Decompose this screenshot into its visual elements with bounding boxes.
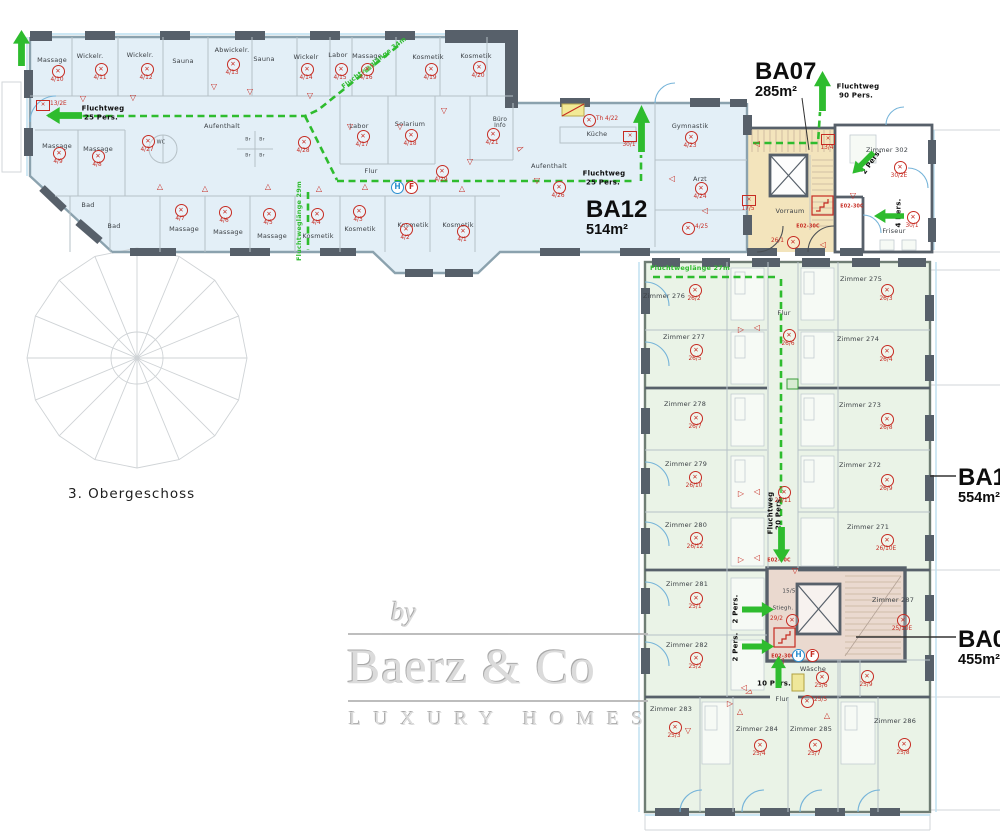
escape-arrow-left <box>46 107 82 124</box>
floor-plan-page: MassageWickelr.Wickelr.SaunaAbwickelr.Sa… <box>0 0 1000 836</box>
detector-code: 29/2 <box>770 616 783 622</box>
area-label-ba04: BA04 455m² <box>958 628 1000 668</box>
plan-label: Flur <box>775 696 788 703</box>
detector-code: 4/15 <box>333 75 346 81</box>
plan-label: Fluchtweglänge 27m <box>650 265 730 272</box>
door-swing-marker: ▽ <box>80 95 86 103</box>
door-swing-marker: ◁ <box>754 488 760 496</box>
detector-code: 26/10 <box>686 483 703 489</box>
detector-code: 4/12 <box>139 75 152 81</box>
ba12-size: 514m² <box>586 223 647 238</box>
door-swing-marker: ▽ <box>211 83 217 91</box>
detector-code: 4/11 <box>93 75 106 81</box>
plan-label: 15/5 <box>782 589 795 595</box>
door-swing-marker: ▽ <box>307 92 313 100</box>
plan-label: Küche <box>587 131 608 138</box>
plan-label: Fluchtweg <box>82 106 125 113</box>
red-direction-arrow: ▻ <box>743 687 753 698</box>
detector-code: 4/5 <box>263 220 272 226</box>
door-swing-marker: ▷ <box>738 490 744 498</box>
plan-label: Massage <box>169 226 199 233</box>
detector-code: 25/10E <box>892 626 912 632</box>
hydrant-icon: H <box>792 649 805 662</box>
plan-label: Zimmer 281 <box>666 581 708 588</box>
red-direction-arrow: ▻ <box>516 143 526 154</box>
detector-code: 4/26 <box>551 193 564 199</box>
plan-label: Br <box>259 155 264 160</box>
plan-label: 2 Pers. <box>733 595 740 624</box>
detector-code: 25/3 <box>667 733 680 739</box>
door-swing-marker: △ <box>265 183 271 191</box>
plan-label: Fluchtweg <box>837 84 880 91</box>
plan-label: Zimmer 278 <box>664 401 706 408</box>
door-swing-marker: ▽ <box>850 192 856 200</box>
plan-label: Stiegh. <box>773 606 794 612</box>
plan-label: Bad <box>107 223 120 230</box>
ba04-name: BA04 <box>958 628 1000 652</box>
detector-code: 25/9 <box>859 682 872 688</box>
ba07-size: 285m² <box>755 85 816 100</box>
plan-label: 25 Pers. <box>84 115 118 122</box>
plan-label: Bad <box>81 202 94 209</box>
plan-label: Labor <box>328 52 347 59</box>
door-swing-marker: ◁ <box>754 554 760 562</box>
plan-label: Flur <box>364 168 377 175</box>
detector-code: 17/5 <box>741 206 754 212</box>
detector-code: 30/1 <box>905 223 918 229</box>
plan-label: Kosmetik <box>412 54 443 61</box>
door-swing-marker: ◁ <box>754 324 760 332</box>
door-swing-marker: ▷ <box>738 326 744 334</box>
door-swing-marker: ▷ <box>727 700 733 708</box>
plan-label: Zimmer 283 <box>650 706 692 713</box>
area-label-ba07: BA07 285m² <box>755 60 816 100</box>
hydrant-icon: H <box>391 181 404 194</box>
plan-label: 25 Pers. <box>586 180 620 187</box>
escape-arrow-up <box>633 105 650 152</box>
plan-label: E02-30C <box>767 560 791 565</box>
detector-code: 4/18 <box>403 141 416 147</box>
escape-arrow-right <box>742 639 774 654</box>
detector-code: 4/3 <box>353 217 362 223</box>
area-label-ba12: BA12 514m² <box>586 198 647 238</box>
detector-code: 4/10 <box>50 77 63 83</box>
plan-label: Zimmer 285 <box>790 726 832 733</box>
door-swing-marker: ▽ <box>467 158 473 166</box>
detector-code: 26/2 <box>687 296 700 302</box>
detector-icon: ✕ <box>682 222 695 235</box>
door-swing-marker: ▽ <box>792 567 798 575</box>
detector-code: 25/4 <box>752 751 765 757</box>
plan-label: Zimmer 284 <box>736 726 778 733</box>
detector-code: 25/1 <box>688 604 701 610</box>
detector-code: 4/20 <box>471 73 484 79</box>
plan-label: Zimmer 282 <box>666 642 708 649</box>
detector-code: 25/6 <box>814 683 827 689</box>
plan-label: Zimmer 277 <box>663 334 705 341</box>
plan-label: E02-30C <box>840 206 864 211</box>
detector-code: 4/4 <box>311 220 320 226</box>
ba11-name: BA11 <box>958 466 1000 490</box>
plan-label: Br <box>245 139 250 144</box>
plan-label: Fluchtweglänge 29m <box>296 181 303 261</box>
extinguisher-icon: F <box>405 181 418 194</box>
door-swing-marker: △ <box>459 185 465 193</box>
plan-label: 2 Pers. <box>733 633 740 662</box>
plan-label: Massage <box>257 233 287 240</box>
hydrant-extinguisher-symbol: HF <box>391 174 419 194</box>
detector-icon: ✕ <box>821 134 835 145</box>
plan-label: E02-30C <box>796 226 820 231</box>
plan-label: Br <box>245 155 250 160</box>
escape-arrow-down <box>773 527 790 563</box>
extinguisher-icon: F <box>806 649 819 662</box>
plan-label: Wickelr. <box>77 53 104 60</box>
detector-code: 25/8 <box>896 750 909 756</box>
detector-code: 26/12 <box>687 544 704 550</box>
door-swing-marker: ◁ <box>820 241 826 249</box>
plan-label: 90 Pers. <box>839 93 873 100</box>
plan-label: Sauna <box>172 58 193 65</box>
plan-label: Zimmer 274 <box>837 336 879 343</box>
detector-code: 4/14 <box>299 75 312 81</box>
detector-code: 4/8 <box>92 162 101 168</box>
plan-label: Zimmer 286 <box>874 718 916 725</box>
detector-icon: ✕ <box>623 131 637 142</box>
area-label-ba11: BA11 554m² <box>958 466 1000 506</box>
detector-code: 4/21 <box>485 140 498 146</box>
detector-icon: ✕ <box>583 114 596 127</box>
door-swing-marker: △ <box>316 185 322 193</box>
detector-code: 26/4 <box>879 357 892 363</box>
escape-arrow-right <box>742 602 774 617</box>
door-swing-marker: △ <box>202 185 208 193</box>
detector-code: 4/19 <box>423 75 436 81</box>
detector-code: 4/7 <box>175 216 184 222</box>
detector-icon: ✕ <box>742 195 756 206</box>
detector-code: 4/27 <box>140 147 153 153</box>
detector-code: 4/28 <box>296 148 309 154</box>
plan-label: Wickelr. <box>127 52 154 59</box>
plan-label: Zimmer 271 <box>847 524 889 531</box>
plan-label: Flur <box>777 310 790 317</box>
door-swing-marker: ◁ <box>702 207 708 215</box>
detector-icon: ✕ <box>36 100 50 111</box>
plan-label: Zimmer 276 <box>643 293 685 300</box>
detector-code: 26/7 <box>688 424 701 430</box>
detector-code: 26/9 <box>879 486 892 492</box>
detector-code: 26/10E <box>876 546 896 552</box>
detector-code: 30/2E <box>891 173 908 179</box>
detector-icon: ✕ <box>787 236 800 249</box>
escape-arrow-up <box>814 71 831 111</box>
annotation-layer: MassageWickelr.Wickelr.SaunaAbwickelr.Sa… <box>0 0 1000 836</box>
plan-label: 4 Pers. <box>896 199 903 228</box>
plan-label: Vorraum <box>776 208 805 215</box>
escape-arrow-up <box>13 30 30 66</box>
detector-code: 4/29 <box>434 177 447 183</box>
plan-label: Friseur <box>882 228 905 235</box>
detector-code: 4/1 <box>457 237 466 243</box>
plan-label: Zimmer 287 <box>872 597 914 604</box>
plan-label: Aufenthalt <box>531 163 567 170</box>
door-swing-marker: ▽ <box>130 94 136 102</box>
detector-icon: ✕ <box>801 695 814 708</box>
detector-code: 4/6 <box>219 218 228 224</box>
door-swing-marker: ▽ <box>534 177 540 185</box>
detector-code: 4/2 <box>400 235 409 241</box>
plan-label: Kosmetik <box>460 53 491 60</box>
plan-label: WC <box>157 141 166 146</box>
detector-code: 4/9 <box>53 159 62 165</box>
detector-code: 4/17 <box>355 142 368 148</box>
detector-code: 13/4 <box>820 145 833 151</box>
detector-code: 4/25 <box>695 224 708 230</box>
detector-code: 4/13 <box>225 70 238 76</box>
ba07-name: BA07 <box>755 60 816 84</box>
door-swing-marker: ▷ <box>738 556 744 564</box>
plan-label: Zimmer 275 <box>840 276 882 283</box>
detector-code: 26/1 <box>771 238 784 244</box>
detector-code: 25/5 <box>814 697 827 703</box>
plan-label: Kosmetik <box>344 226 375 233</box>
detector-code: 26/5 <box>688 356 701 362</box>
plan-label: Fluchtweg <box>583 171 626 178</box>
floor-title: 3. Obergeschoss <box>68 486 195 502</box>
plan-label: Zimmer 280 <box>665 522 707 529</box>
detector-code: 4/23 <box>683 143 696 149</box>
detector-code: 30/1 <box>622 142 635 148</box>
detector-code: 4/16 <box>359 75 372 81</box>
detector-code: 26/8 <box>879 425 892 431</box>
plan-label: 10 Pers. <box>757 681 791 688</box>
detector-code: 13/2E <box>50 101 67 107</box>
plan-label: Sauna <box>253 56 274 63</box>
detector-code: Th 4/22 <box>596 116 618 122</box>
ba12-name: BA12 <box>586 198 647 222</box>
plan-label: Zimmer 279 <box>665 461 707 468</box>
detector-code: 25/7 <box>807 751 820 757</box>
detector-code: 26/3 <box>879 296 892 302</box>
plan-label: Fluchtweg <box>768 492 775 535</box>
plan-label: Kosmetik <box>302 233 333 240</box>
door-swing-marker: ▽ <box>247 88 253 96</box>
door-swing-marker: △ <box>737 708 743 716</box>
plan-label: Br <box>259 139 264 144</box>
door-swing-marker: ▽ <box>347 123 353 131</box>
plan-label: Aufenthalt <box>204 123 240 130</box>
plan-label: Zimmer 273 <box>839 402 881 409</box>
plan-label: Abwickelr. <box>215 47 250 54</box>
detector-icon: ✕ <box>786 614 799 627</box>
door-swing-marker: ▽ <box>397 123 403 131</box>
detector-code: 4/24 <box>693 194 706 200</box>
door-swing-marker: △ <box>362 183 368 191</box>
detector-code: 25/2 <box>688 664 701 670</box>
door-swing-marker: ◁ <box>669 175 675 183</box>
door-swing-marker: ▽ <box>685 727 691 735</box>
plan-label: Gymnastik <box>672 123 709 130</box>
door-swing-marker: ◁ <box>754 140 760 148</box>
ba11-size: 554m² <box>958 491 1000 506</box>
door-swing-marker: ▽ <box>441 107 447 115</box>
detector-code: 26/6 <box>781 341 794 347</box>
door-swing-marker: △ <box>157 183 163 191</box>
hydrant-extinguisher-symbol: HF <box>792 642 820 662</box>
plan-label: Wickelr <box>293 54 318 61</box>
plan-label: Zimmer 272 <box>839 462 881 469</box>
plan-label: Fluchtweglänge 34m <box>341 36 408 90</box>
plan-label: Massage <box>213 229 243 236</box>
detector-code: 26/11 <box>775 498 792 504</box>
ba04-size: 455m² <box>958 653 1000 668</box>
plan-label: Massage <box>37 57 67 64</box>
door-swing-marker: △ <box>824 712 830 720</box>
